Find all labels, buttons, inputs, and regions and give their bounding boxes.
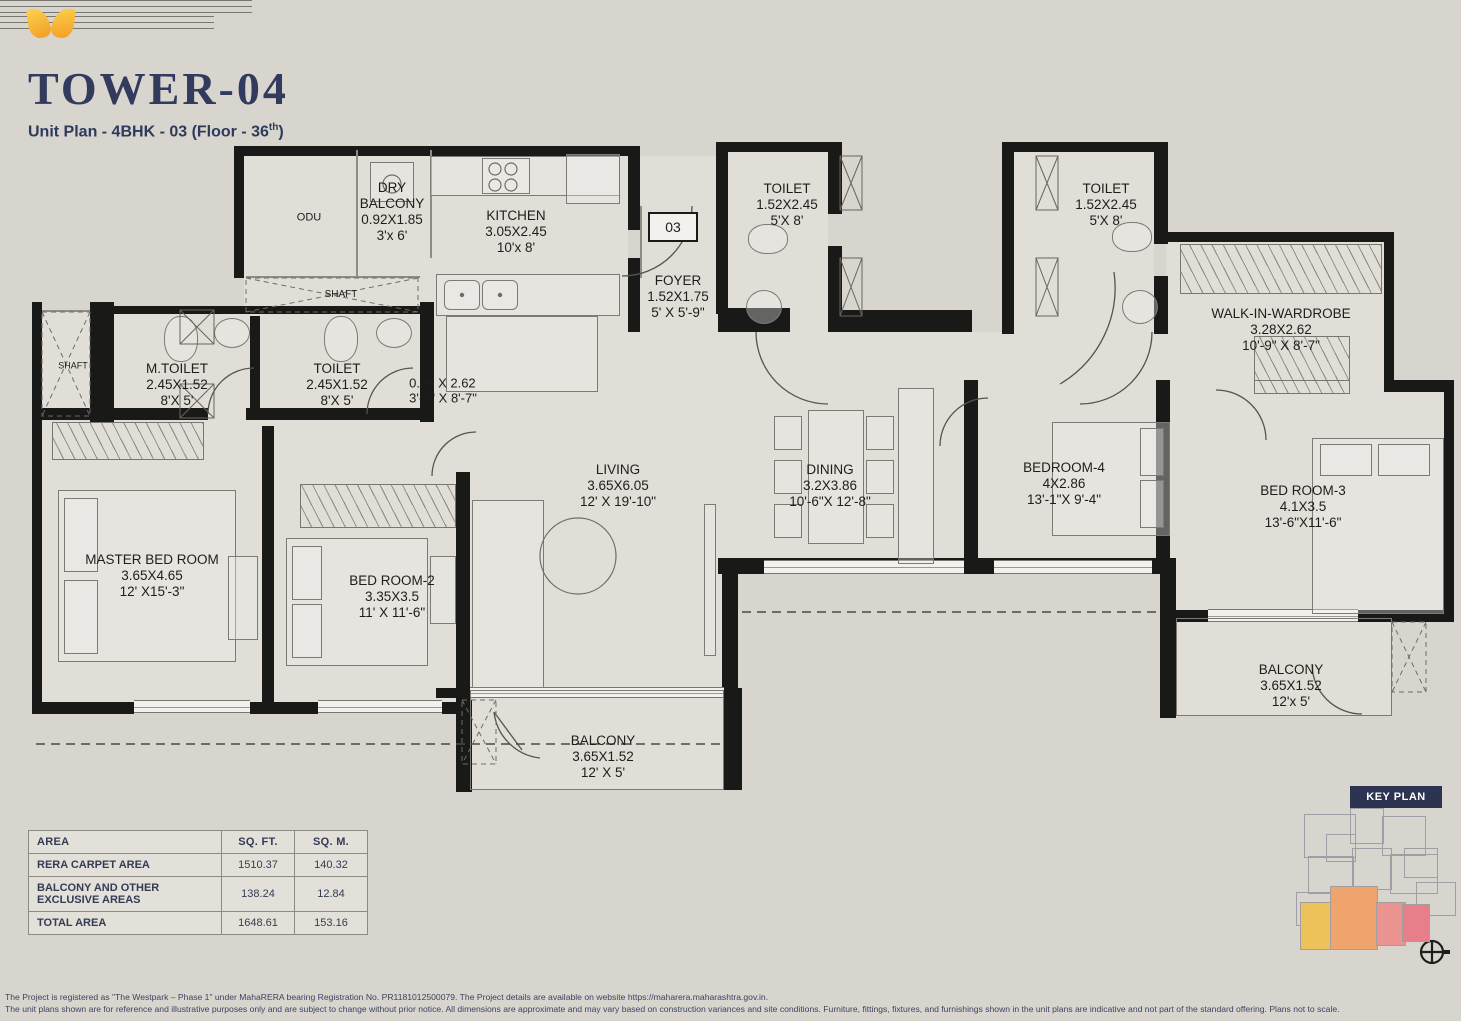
room-label-m-toilet: M.TOILET2.45X1.528'X 5'	[146, 361, 208, 409]
partition-line	[246, 276, 420, 278]
room-label-line: ODU	[297, 212, 321, 225]
room-label-line: 12' X15'-3"	[85, 584, 219, 600]
room-label-line: 3.65X1.52	[1259, 678, 1324, 694]
room-label-passage: 0.98 X 2.623'-2" X 8'-7"	[409, 376, 477, 407]
room-label-line: BALCONY	[571, 733, 636, 749]
area-table-cell: TOTAL AREA	[29, 912, 222, 935]
room-label-balcony-right: BALCONY3.65X1.5212'x 5'	[1259, 662, 1324, 710]
room-label-line: 2.45X1.52	[306, 377, 368, 393]
wall-segment	[250, 316, 260, 414]
room-label-line: FOYER	[647, 273, 709, 289]
wall-segment	[1002, 142, 1168, 152]
room-label-line: 3'-2" X 8'-7"	[409, 391, 477, 406]
room-label-line: 2.45X1.52	[146, 377, 208, 393]
room-label-line: 0.98 X 2.62	[409, 376, 477, 391]
nightstand-furniture	[228, 556, 258, 640]
room-label-foyer: FOYER1.52X1.755' X 5'-9"	[647, 273, 709, 321]
key-plan-wing	[1352, 848, 1392, 890]
room-label-line: 5'X 8'	[1075, 213, 1137, 229]
room-label-toilet-common: TOILET2.45X1.528'X 5'	[306, 361, 368, 409]
sofa-furniture	[472, 500, 544, 688]
logo-right-wing-icon	[50, 7, 76, 40]
washbasin-furniture	[746, 290, 782, 324]
room-label-line: M.TOILET	[146, 361, 208, 377]
washbasin-furniture	[1122, 290, 1158, 324]
room-label-line: 3.28X2.62	[1211, 322, 1350, 338]
room-label-line: 12' X 19'-10"	[580, 494, 656, 510]
wall-segment	[90, 302, 114, 422]
tv-panel-furniture	[704, 504, 716, 656]
room-label-line: 8'X 5'	[306, 393, 368, 409]
window	[764, 560, 964, 574]
room-label-line: 5'X 8'	[756, 213, 818, 229]
room-label-line: 12'x 5'	[1259, 694, 1324, 710]
key-plan-highlighted-unit	[1402, 904, 1430, 942]
page-subtitle: Unit Plan - 4BHK - 03 (Floor - 36th)	[28, 122, 284, 141]
wall-segment	[1154, 142, 1168, 244]
wall-segment	[830, 310, 972, 332]
area-table-row: TOTAL AREA1648.61153.16	[29, 912, 368, 935]
partition-line	[42, 310, 90, 312]
room-label-line: LIVING	[580, 462, 656, 478]
pillow-furniture	[292, 546, 322, 600]
room-label-line: DINING	[789, 462, 871, 478]
area-statement-table: AREASQ. FT.SQ. M. RERA CARPET AREA1510.3…	[28, 830, 368, 935]
room-label-line: BEDROOM-4	[1023, 460, 1105, 476]
room-label-line: 3.65X6.05	[580, 478, 656, 494]
area-table-cell: 12.84	[295, 877, 368, 912]
room-label-toilet-3: TOILET1.52X2.455'X 8'	[756, 181, 818, 229]
room-label-line: 1.52X2.45	[756, 197, 818, 213]
room-label-master-bedroom: MASTER BED ROOM3.65X4.6512' X15'-3"	[85, 552, 219, 600]
room-label-line: 1.52X1.75	[647, 289, 709, 305]
wall-segment	[828, 246, 842, 332]
room-label-line: 3.05X2.45	[485, 224, 547, 240]
room-label-line: KITCHEN	[485, 208, 547, 224]
key-plan-badge: KEY PLAN	[1350, 786, 1442, 808]
wall-segment	[628, 146, 640, 230]
room-label-line: 1.52X2.45	[1075, 197, 1137, 213]
wall-segment	[1002, 142, 1014, 334]
room-label-line: BED ROOM-2	[349, 573, 435, 589]
room-label-line: 10'x 8'	[485, 240, 547, 256]
area-table-header: SQ. M.	[295, 831, 368, 854]
room-label-balcony-bottom: BALCONY3.65X1.5212' X 5'	[571, 733, 636, 781]
room-label-line: 5' X 5'-9"	[647, 305, 709, 321]
area-table-head: AREASQ. FT.SQ. M.	[29, 831, 368, 854]
room-label-line: 13'-1"X 9'-4"	[1023, 492, 1105, 508]
room-label-line: 13'-6"X11'-6"	[1260, 515, 1346, 531]
partition-line	[356, 150, 358, 276]
wall-segment	[456, 472, 470, 704]
room-label-living: LIVING3.65X6.0512' X 19'-10"	[580, 462, 656, 510]
room-label-line: 0.92X1.85	[360, 212, 425, 228]
wall-segment	[716, 142, 728, 314]
dining-chair-furniture	[774, 416, 802, 450]
area-table-cell: 140.32	[295, 854, 368, 877]
area-table-body: RERA CARPET AREA1510.37140.32BALCONY AND…	[29, 854, 368, 935]
brand-logo-icon	[28, 8, 76, 42]
pillow-furniture	[1320, 444, 1372, 476]
disclaimer-line-1: The Project is registered as "The Westpa…	[5, 991, 1460, 1003]
washbasin-furniture	[376, 318, 412, 348]
area-table-cell: 138.24	[222, 877, 295, 912]
room-label-toilet-4: TOILET1.52X2.455'X 8'	[1075, 181, 1137, 229]
wall-segment	[724, 688, 742, 790]
room-label-dry-balcony: DRYBALCONY0.92X1.853'x 6'	[360, 180, 425, 244]
wall-segment	[234, 146, 244, 278]
logo-left-wing-icon	[26, 7, 52, 40]
refrigerator-furniture	[566, 154, 620, 204]
room-label-line: BALCONY	[360, 196, 425, 212]
unit-door-number: 03	[648, 212, 698, 242]
room-label-line: 3.65X4.65	[85, 568, 219, 584]
area-table-cell: 1510.37	[222, 854, 295, 877]
key-plan: KEY PLAN	[1286, 786, 1458, 982]
wall-segment	[32, 702, 134, 714]
wall-segment	[1384, 232, 1394, 390]
window	[994, 560, 1152, 574]
wc-furniture	[164, 316, 198, 362]
room-label-line: WALK-IN-WARDROBE	[1211, 306, 1350, 322]
wall-segment	[1160, 558, 1176, 718]
wall-segment	[246, 408, 434, 420]
crockery-cabinet-furniture	[898, 388, 934, 564]
disclaimer-line-2: The unit plans shown are for reference a…	[5, 1003, 1460, 1015]
wall-segment	[1444, 380, 1454, 622]
area-table-cell: 1648.61	[222, 912, 295, 935]
washbasin-furniture	[214, 318, 250, 348]
wc-furniture	[324, 316, 358, 362]
room-label-kitchen: KITCHEN3.05X2.4510'x 8'	[485, 208, 547, 256]
room-label-line: DRY	[360, 180, 425, 196]
room-label-odu: ODU	[297, 212, 321, 225]
area-table-header: SQ. FT.	[222, 831, 295, 854]
room-label-line: MASTER BED ROOM	[85, 552, 219, 568]
room-label-line: 10'-9" X 8'-7"	[1211, 338, 1350, 354]
pillow-furniture	[1140, 428, 1164, 476]
key-plan-highlighted-unit	[1330, 886, 1378, 950]
wall-segment	[828, 142, 842, 214]
room-label-bedroom-4: BEDROOM-44X2.8613'-1"X 9'-4"	[1023, 460, 1105, 508]
wall-segment	[628, 258, 640, 332]
pillow-furniture	[292, 604, 322, 658]
area-table-row: RERA CARPET AREA1510.37140.32	[29, 854, 368, 877]
wall-segment	[262, 426, 274, 712]
room-label-line: TOILET	[756, 181, 818, 197]
room-label-line: 3.65X1.52	[571, 749, 636, 765]
subtitle-text: Unit Plan - 4BHK - 03 (Floor - 36	[28, 123, 269, 140]
room-label-line: BED ROOM-3	[1260, 483, 1346, 499]
wall-segment	[716, 142, 840, 152]
room-label-line: 11' X 11'-6"	[349, 605, 435, 621]
wardrobe-hatch	[1254, 380, 1350, 394]
room-label-line: SHAFT	[58, 361, 88, 372]
wardrobe-hatch	[300, 484, 456, 528]
room-label-line: BALCONY	[1259, 662, 1324, 678]
wall-segment	[1166, 232, 1394, 242]
room-label-line: SHAFT	[325, 289, 358, 301]
wall-segment	[250, 702, 318, 714]
room-label-line: 3.2X3.86	[789, 478, 871, 494]
room-label-line: 8'X 5'	[146, 393, 208, 409]
window	[134, 700, 250, 713]
area-table-row: BALCONY AND OTHER EXCLUSIVE AREAS138.241…	[29, 877, 368, 912]
unit-plan-page: TOWER-04 Unit Plan - 4BHK - 03 (Floor - …	[0, 0, 1461, 1021]
room-label-dining: DINING3.2X3.8610'-6"X 12'-8"	[789, 462, 871, 510]
room-label-shaft-left: SHAFT	[58, 361, 88, 372]
wardrobe-hatch	[52, 422, 204, 460]
room-label-shaft-top: SHAFT	[325, 289, 358, 301]
pillow-furniture	[1140, 480, 1164, 528]
wardrobe-hatch	[1180, 244, 1382, 294]
room-label-bedroom-2: BED ROOM-23.35X3.511' X 11'-6"	[349, 573, 435, 621]
sink-furniture	[444, 280, 480, 310]
disclaimer-text: The Project is registered as "The Westpa…	[5, 991, 1460, 1016]
floor-plan: ODUDRYBALCONY0.92X1.853'x 6'KITCHEN3.05X…	[0, 0, 1461, 32]
wall-segment	[96, 306, 426, 314]
wall-segment	[32, 408, 208, 420]
wall-segment	[964, 380, 978, 568]
partition-line	[640, 206, 642, 278]
room-label-line: 12' X 5'	[571, 765, 636, 781]
stove-furniture	[482, 158, 530, 194]
area-table-cell: RERA CARPET AREA	[29, 854, 222, 877]
room-label-line: TOILET	[1075, 181, 1137, 197]
room-label-line: 4X2.86	[1023, 476, 1105, 492]
sink-furniture	[482, 280, 518, 310]
area-table-cell: BALCONY AND OTHER EXCLUSIVE AREAS	[29, 877, 222, 912]
window	[318, 700, 442, 713]
area-table-header: AREA	[29, 831, 222, 854]
key-plan-highlighted-unit	[1300, 902, 1334, 950]
wall-segment	[32, 302, 42, 714]
page-title: TOWER-04	[28, 62, 289, 115]
room-label-walk-in-wardrobe: WALK-IN-WARDROBE3.28X2.6210'-9" X 8'-7"	[1211, 306, 1350, 354]
room-label-line: 10'-6"X 12'-8"	[789, 494, 871, 510]
key-plan-wing	[1326, 834, 1356, 862]
wall-segment	[722, 558, 738, 692]
dining-chair-furniture	[866, 416, 894, 450]
room-label-line: TOILET	[306, 361, 368, 377]
key-plan-wing	[1404, 848, 1438, 878]
room-label-line: 4.1X3.5	[1260, 499, 1346, 515]
room-label-line: 3'x 6'	[360, 228, 425, 244]
subtitle-close: )	[278, 123, 283, 140]
area-table-cell: 153.16	[295, 912, 368, 935]
subtitle-ordinal: th	[269, 122, 278, 133]
room-label-line: 3.35X3.5	[349, 589, 435, 605]
room-label-bedroom-3: BED ROOM-34.1X3.513'-6"X11'-6"	[1260, 483, 1346, 531]
pillow-furniture	[1378, 444, 1430, 476]
